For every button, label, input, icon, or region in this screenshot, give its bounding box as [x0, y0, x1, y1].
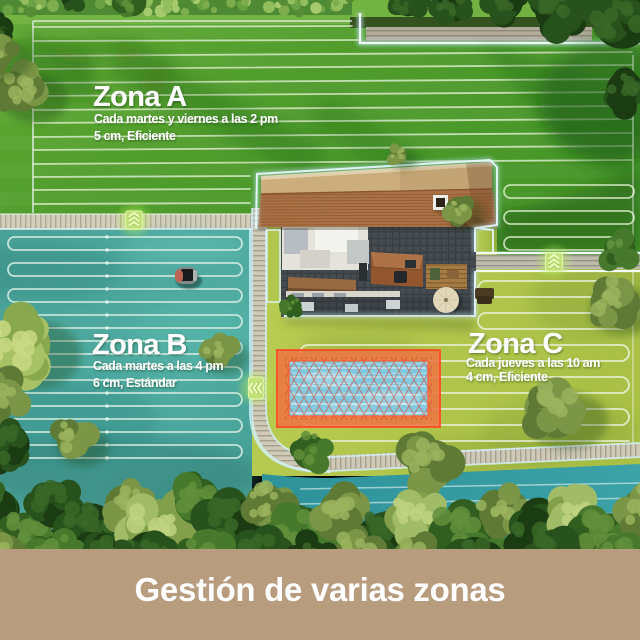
svg-text:Cada jueves a las 10 am: Cada jueves a las 10 am: [466, 356, 600, 370]
svg-text:4 cm, Eficiente: 4 cm, Eficiente: [466, 370, 548, 384]
svg-text:5 cm, Eficiente: 5 cm, Eficiente: [94, 129, 176, 143]
svg-text:Zona B: Zona B: [92, 329, 187, 361]
svg-text:Gestión de varias zonas: Gestión de varias zonas: [135, 571, 506, 608]
svg-text:Cada martes a las 4 pm: Cada martes a las 4 pm: [93, 359, 223, 373]
svg-text:6 cm, Estándar: 6 cm, Estándar: [93, 376, 177, 390]
svg-text:Cada martes y viernes a las 2: Cada martes y viernes a las 2 pm: [94, 112, 278, 126]
svg-text:Zona A: Zona A: [93, 81, 187, 113]
